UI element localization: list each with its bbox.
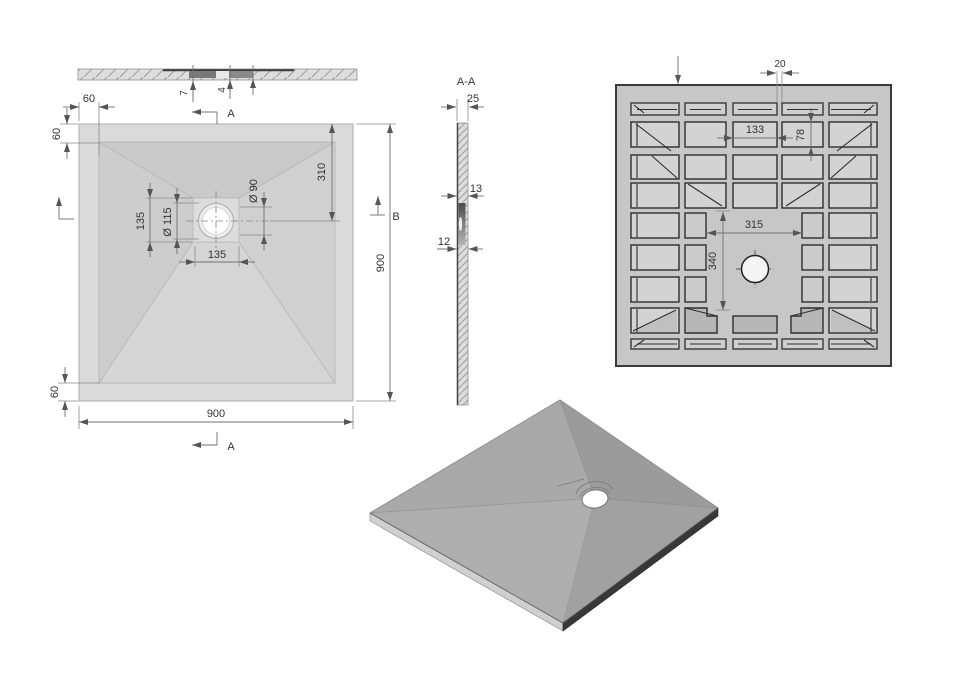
dim-center-height: 340 xyxy=(707,252,719,270)
dim-drain-thickness: 12 xyxy=(438,236,450,248)
drawing-page: 7 4 60 60 60 xyxy=(0,0,970,686)
section-title: A-A xyxy=(457,76,476,88)
dim-pocket-height: 78 xyxy=(795,129,807,141)
edge-channel-light xyxy=(216,71,229,78)
rib-pocket xyxy=(733,316,777,333)
rib-pocket xyxy=(802,245,823,270)
rib-pocket xyxy=(733,183,777,208)
dim-drain-recess-dia: Ø 115 xyxy=(162,207,174,236)
edge-channel-dark2 xyxy=(229,71,253,78)
rib-pocket xyxy=(685,122,726,147)
rib-pocket xyxy=(829,245,877,270)
dim-rim-top: 60 xyxy=(83,93,95,105)
rib-pocket xyxy=(685,277,706,302)
rib-pocket xyxy=(685,155,726,179)
rib-pocket xyxy=(829,277,877,302)
underside-drain-hole xyxy=(742,256,769,283)
dim-overall-height: 900 xyxy=(375,254,387,272)
rib-pocket xyxy=(685,213,706,238)
rib-pocket xyxy=(802,213,823,238)
dim-recess-depth: 4 xyxy=(217,87,228,93)
dim-rim-left: 60 xyxy=(51,128,63,140)
dim-mid-thickness: 13 xyxy=(470,183,482,195)
rib-pocket xyxy=(631,245,679,270)
dim-rim-bottom: 60 xyxy=(49,386,61,398)
dim-lip-height: 7 xyxy=(179,90,190,96)
section-view-aa: A-A 25 13 12 xyxy=(437,76,484,405)
rib-pocket xyxy=(802,277,823,302)
rib-pocket xyxy=(631,213,679,238)
section-drain-slot xyxy=(459,217,462,231)
section-label-a-bottom: A xyxy=(227,441,235,453)
rib-pocket xyxy=(631,183,679,208)
dim-drain-square-width: 135 xyxy=(208,249,226,261)
rib-pocket xyxy=(829,213,877,238)
bottom-rib-view: 20 133 78 315 340 xyxy=(616,56,891,366)
section-strip-hatch xyxy=(457,123,468,405)
dim-drain-offset-top: 310 xyxy=(316,163,328,181)
dim-center-width: 315 xyxy=(745,219,763,231)
iso-face-sw xyxy=(370,498,595,623)
dim-drain-hole-dia: Ø 90 xyxy=(248,179,260,203)
dim-edge-thickness: 25 xyxy=(467,93,479,105)
dim-drain-square-height: 135 xyxy=(135,212,147,230)
rib-pocket xyxy=(733,155,777,179)
rib-pocket xyxy=(782,155,823,179)
dim-overall-width: 900 xyxy=(207,408,225,420)
section-label-b-right: B xyxy=(392,211,399,223)
dim-rib-width: 20 xyxy=(774,59,786,70)
iso-face-nw xyxy=(370,400,595,513)
isometric-view xyxy=(370,400,718,631)
rib-pocket xyxy=(685,245,706,270)
dim-pocket-width: 133 xyxy=(746,124,764,136)
front-edge-view: 7 4 xyxy=(78,65,357,102)
rib-pocket xyxy=(631,277,679,302)
top-plan-view: 60 60 60 135 Ø 115 Ø 90 xyxy=(49,93,400,453)
rib-pocket xyxy=(829,183,877,208)
section-label-a-top: A xyxy=(227,108,235,120)
technical-drawing-canvas: 7 4 60 60 60 xyxy=(0,0,970,686)
